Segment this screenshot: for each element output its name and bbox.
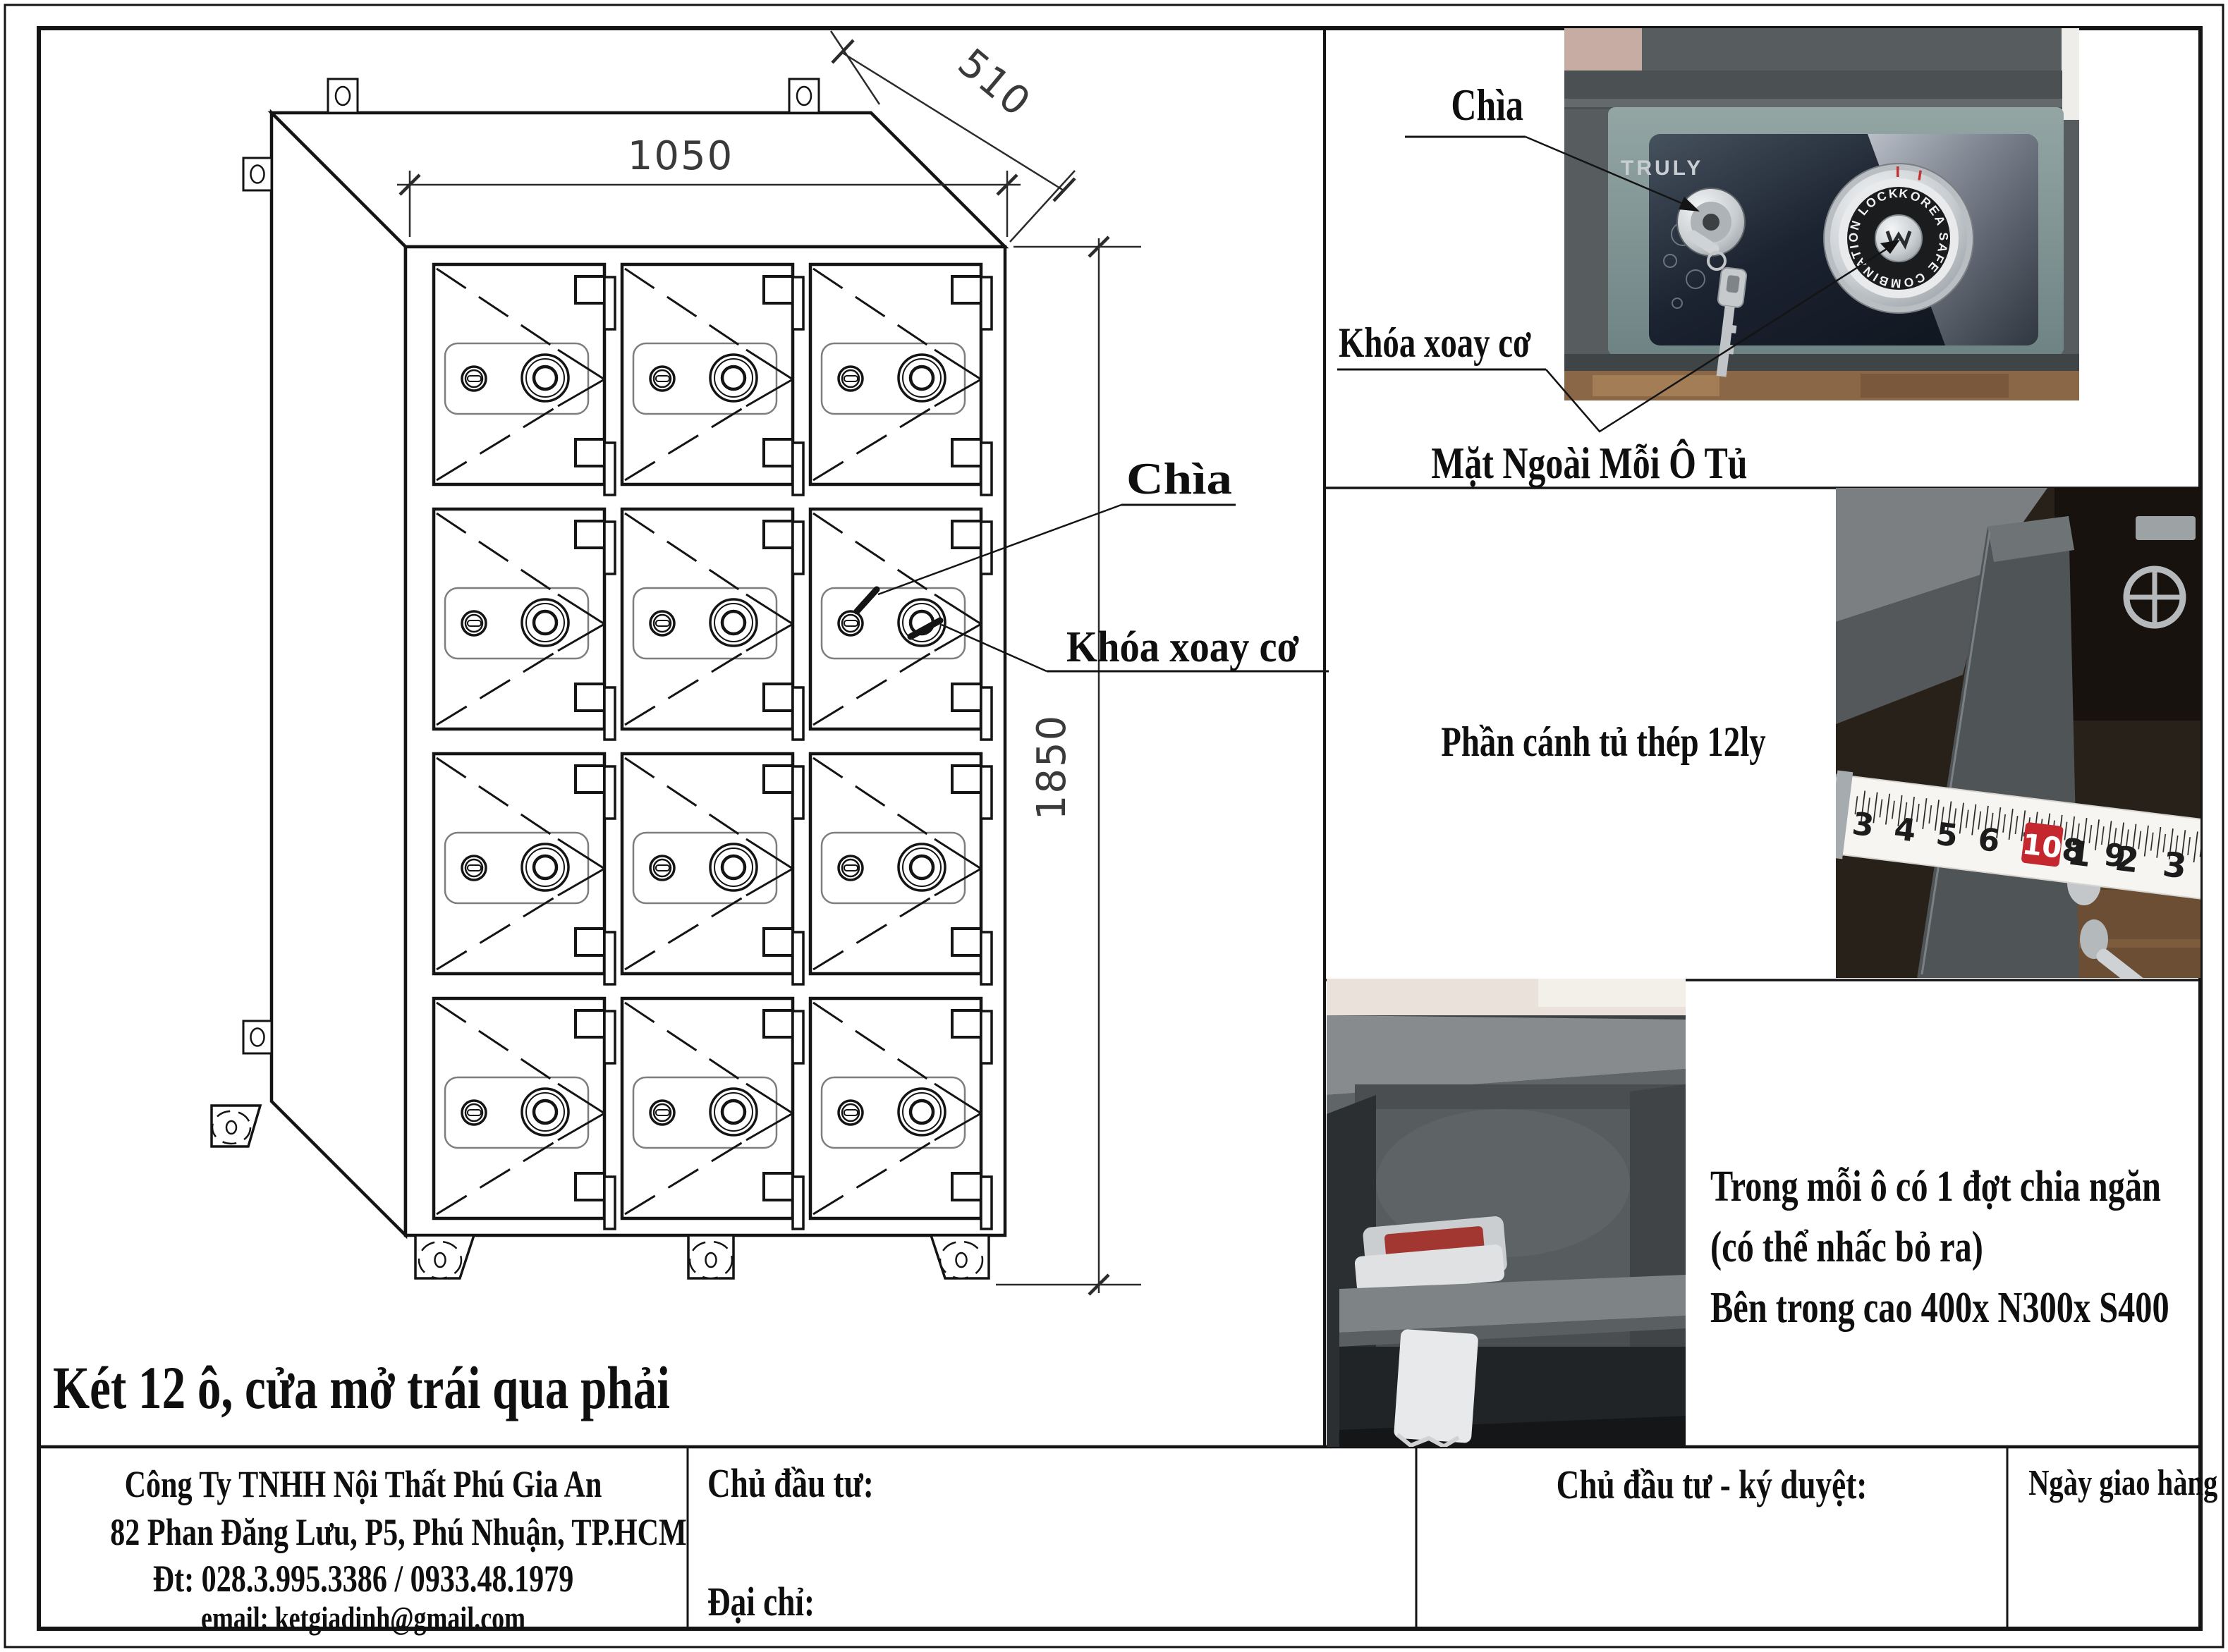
tape-number-ten: 10 — [2021, 828, 2064, 864]
key-lock-cylinder — [1677, 188, 1745, 257]
background-wall — [1564, 28, 1642, 73]
foam-piece — [1393, 1329, 1478, 1447]
locker-door — [434, 264, 615, 495]
locker-door — [810, 509, 992, 740]
combination-dial: KOREA SAFE COMBINATION LOCK — [1824, 164, 1973, 313]
drawing-sheet: 1050 510 1850 Chìa Khóa xoay cơ — [0, 0, 2228, 1652]
company-name: Công Ty TNHH Nội Thất Phú Gia An — [110, 1462, 616, 1506]
photo-compartment-interior — [1327, 979, 1686, 1447]
delivery-label: Ngày giao hàng — [2028, 1462, 2179, 1504]
door-thickness-note: Phần cánh tủ thép 12ly — [1441, 718, 1732, 766]
photo-dial-label: Khóa xoay cơ — [1339, 319, 1531, 367]
interior-note-line2: (có thể nhấc bỏ ra) — [1710, 1217, 2095, 1278]
locker-door — [434, 754, 615, 984]
locker-door — [434, 509, 615, 740]
photo-door-thickness: 3 4 5 6 7 8 9 10 1 2 3 4 5 6 7 — [1836, 488, 2200, 978]
approval-label: Chủ đầu tư - ký duyệt: — [1481, 1461, 1942, 1508]
locker-door — [622, 264, 803, 495]
address-label: Đại chỉ: — [707, 1578, 815, 1625]
company-address: 82 Phan Đăng Lưu, P5, Phú Nhuận, TP.HCM — [110, 1510, 616, 1554]
investor-label: Chủ đầu tư: — [707, 1460, 874, 1507]
locker-door — [622, 998, 803, 1229]
company-email: email: ketgiadinh@gmail.com — [110, 1599, 616, 1636]
drawing-dial-label: Khóa xoay cơ — [1066, 623, 1299, 671]
title-cell-company: Công Ty TNHH Nội Thất Phú Gia An 82 Phan… — [39, 1447, 688, 1629]
title-cell-approval: Chủ đầu tư - ký duyệt: — [1416, 1447, 2007, 1629]
title-cell-delivery: Ngày giao hàng — [2007, 1447, 2200, 1629]
drawing-key-label: Chìa — [1126, 453, 1232, 503]
dim-depth-text: 510 — [949, 40, 1040, 126]
brand-logo: TRULY — [1621, 157, 1703, 180]
interior-note-line3: Bên trong cao 400x N300x S400 — [1710, 1278, 2095, 1338]
locker-door — [622, 509, 803, 740]
dim-width-text: 1050 — [628, 133, 734, 179]
plastic-bags — [1352, 1216, 1509, 1293]
locker-door — [810, 754, 992, 984]
photo-exterior-caption: Mặt Ngoài Mỗi Ô Tủ — [1431, 437, 1717, 489]
interior-note-line1: Trong mỗi ô có 1 đợt chia ngăn — [1710, 1156, 2095, 1217]
locker-door — [810, 264, 992, 495]
dim-height-text: 1850 — [1029, 714, 1075, 821]
interior-note: Trong mỗi ô có 1 đợt chia ngăn (có thể n… — [1710, 1156, 2204, 1338]
locker-door — [810, 998, 992, 1229]
photo-key-label: Chìa — [1413, 79, 1523, 131]
drawing-title: Két 12 ô, cửa mở trái qua phải — [53, 1352, 670, 1423]
title-cell-investor: Chủ đầu tư: Đại chỉ: — [688, 1447, 1416, 1629]
company-phone: Đt: 028.3.995.3386 / 0933.48.1979 — [110, 1557, 616, 1601]
locker-door — [434, 998, 615, 1229]
photo-safe-exterior: TRULY KORE — [1564, 28, 2079, 400]
locker-door — [622, 754, 803, 984]
